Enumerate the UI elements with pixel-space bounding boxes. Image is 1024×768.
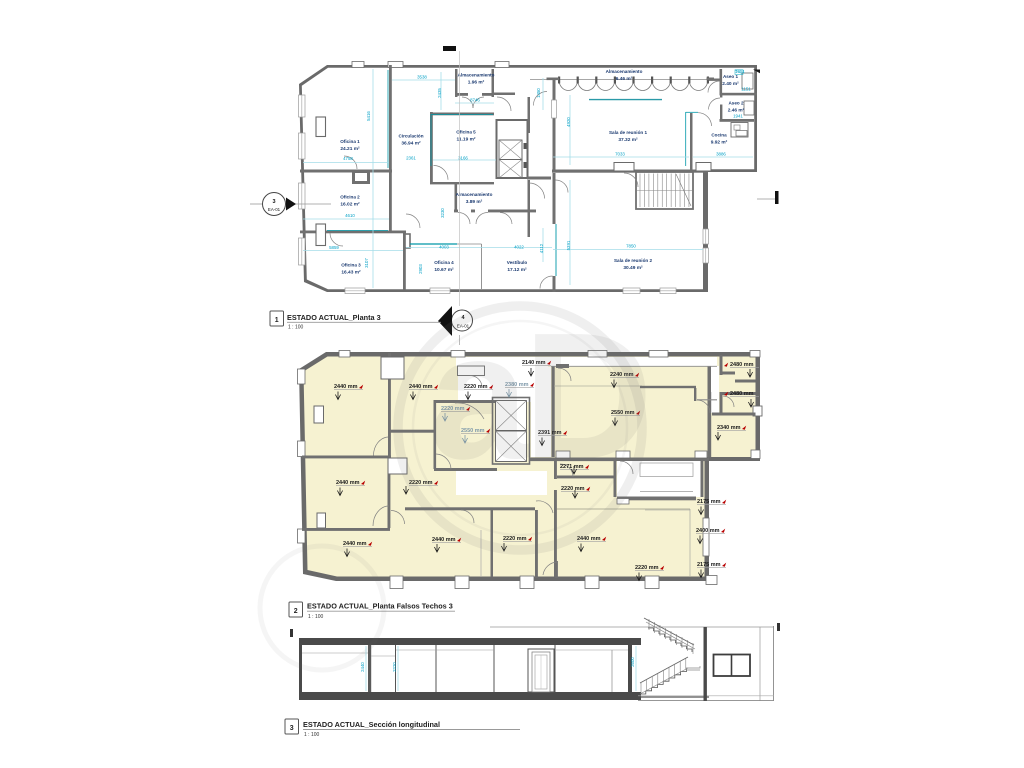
svg-text:4758: 4758 xyxy=(343,156,353,161)
svg-text:ESTADO ACTUAL_Planta 3: ESTADO ACTUAL_Planta 3 xyxy=(287,313,381,322)
svg-text:10.67 m²: 10.67 m² xyxy=(434,267,454,273)
svg-text:Vestíbulo: Vestíbulo xyxy=(507,260,528,265)
svg-text:Oficina 3: Oficina 3 xyxy=(341,263,361,268)
svg-text:16.02 m²: 16.02 m² xyxy=(340,202,360,208)
svg-text:Almacenamiento: Almacenamiento xyxy=(458,73,495,78)
svg-text:1.96 m²: 1.96 m² xyxy=(468,80,485,86)
svg-text:5391: 5391 xyxy=(566,240,571,250)
svg-text:1 : 100: 1 : 100 xyxy=(308,614,324,620)
svg-text:Sala de reunión 2: Sala de reunión 2 xyxy=(614,258,652,263)
svg-text:3107: 3107 xyxy=(364,258,369,268)
svg-text:Oficina 2: Oficina 2 xyxy=(340,195,360,200)
svg-text:Cocina: Cocina xyxy=(711,133,727,138)
svg-text:16.43 m²: 16.43 m² xyxy=(341,270,361,276)
svg-text:Aseo 1: Aseo 1 xyxy=(723,74,739,79)
svg-text:2400 mm: 2400 mm xyxy=(696,528,720,534)
svg-text:7850: 7850 xyxy=(626,244,636,249)
svg-text:4003: 4003 xyxy=(439,245,449,250)
svg-text:2440 mm: 2440 mm xyxy=(343,541,367,547)
svg-text:17.12 m²: 17.12 m² xyxy=(507,267,527,273)
svg-text:2440 mm: 2440 mm xyxy=(432,537,456,543)
svg-text:5416: 5416 xyxy=(366,111,371,121)
svg-text:8746: 8746 xyxy=(470,98,480,103)
svg-text:2175 mm: 2175 mm xyxy=(697,562,721,568)
svg-text:9.92 m²: 9.92 m² xyxy=(711,140,728,146)
svg-text:1450: 1450 xyxy=(536,88,541,98)
svg-text:30.49 m²: 30.49 m² xyxy=(623,265,643,271)
svg-text:3886: 3886 xyxy=(716,152,726,157)
svg-text:Circulación: Circulación xyxy=(398,134,423,139)
svg-text:2435: 2435 xyxy=(437,88,442,98)
svg-text:1 : 100: 1 : 100 xyxy=(304,732,320,738)
svg-text:2.46 m²: 2.46 m² xyxy=(728,108,745,114)
svg-text:6.46 m²: 6.46 m² xyxy=(616,76,633,82)
svg-text:2175 mm: 2175 mm xyxy=(697,499,721,505)
svg-text:4920: 4920 xyxy=(566,117,571,127)
svg-text:2903: 2903 xyxy=(418,264,423,274)
svg-text:4610: 4610 xyxy=(345,213,355,218)
svg-text:2600: 2600 xyxy=(630,657,635,667)
svg-text:2480 mm: 2480 mm xyxy=(730,391,754,397)
svg-text:Aseo 2: Aseo 2 xyxy=(728,101,744,106)
svg-text:7033: 7033 xyxy=(615,152,625,157)
svg-text:2220: 2220 xyxy=(392,662,397,672)
svg-text:2440 mm: 2440 mm xyxy=(336,480,360,486)
svg-text:1: 1 xyxy=(275,317,279,324)
svg-text:Oficina 4: Oficina 4 xyxy=(434,260,454,265)
svg-text:1 : 100: 1 : 100 xyxy=(288,325,304,331)
svg-text:2220 mm: 2220 mm xyxy=(635,565,659,571)
svg-text:2.40 m²: 2.40 m² xyxy=(722,81,739,87)
svg-text:ESTADO ACTUAL_Planta Falsos Te: ESTADO ACTUAL_Planta Falsos Techos 3 xyxy=(307,602,453,611)
svg-text:1151: 1151 xyxy=(741,87,751,92)
svg-text:5859: 5859 xyxy=(329,245,339,250)
svg-text:4022: 4022 xyxy=(514,245,524,250)
svg-text:2361: 2361 xyxy=(406,156,416,161)
svg-text:2440: 2440 xyxy=(360,662,365,672)
svg-text:4112: 4112 xyxy=(539,243,544,253)
svg-text:2480 mm: 2480 mm xyxy=(730,362,754,368)
svg-text:2220 mm: 2220 mm xyxy=(503,536,527,542)
svg-text:36.94 m²: 36.94 m² xyxy=(401,141,421,147)
svg-text:3: 3 xyxy=(290,725,294,732)
svg-text:Oficina 1: Oficina 1 xyxy=(340,139,360,144)
svg-text:3538: 3538 xyxy=(417,75,427,80)
svg-text:2340 mm: 2340 mm xyxy=(717,425,741,431)
svg-text:Sala de reunión 1: Sala de reunión 1 xyxy=(609,130,647,135)
svg-text:37.32 m²: 37.32 m² xyxy=(618,137,638,143)
svg-text:3: 3 xyxy=(272,199,275,205)
svg-text:3230: 3230 xyxy=(440,208,445,218)
svg-text:Almacenamiento: Almacenamiento xyxy=(456,192,493,197)
svg-text:ESTADO ACTUAL_Sección longitud: ESTADO ACTUAL_Sección longitudinal xyxy=(303,720,440,729)
svg-text:EA-01: EA-01 xyxy=(268,207,281,212)
svg-text:2440 mm: 2440 mm xyxy=(334,384,358,390)
svg-text:24.21 m²: 24.21 m² xyxy=(340,146,360,152)
svg-text:Almacenamiento: Almacenamiento xyxy=(606,69,643,74)
svg-text:aD: aD xyxy=(429,296,647,497)
svg-text:1941: 1941 xyxy=(733,114,743,119)
svg-text:3.89 m²: 3.89 m² xyxy=(466,199,483,205)
svg-text:2: 2 xyxy=(294,608,298,615)
